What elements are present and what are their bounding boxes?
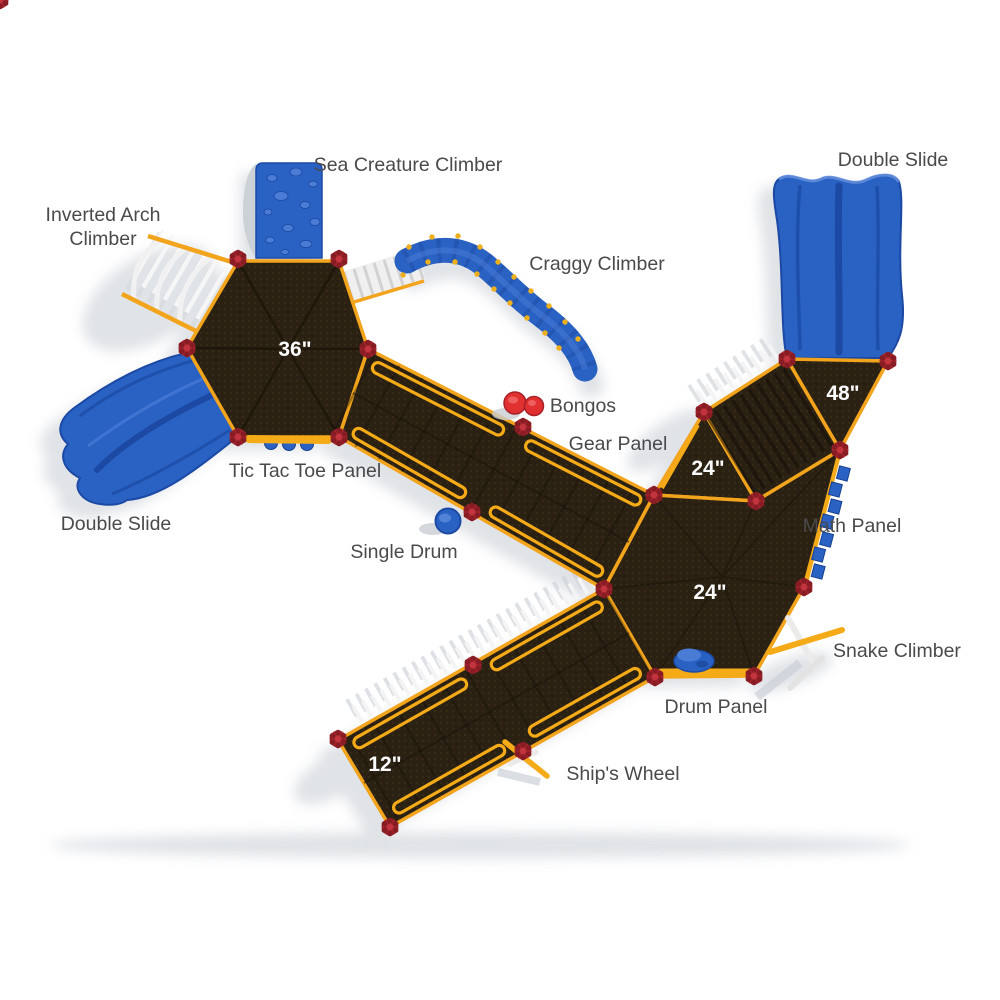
double-slide-top: [774, 175, 903, 358]
label-drum-panel: Drum Panel: [665, 696, 768, 718]
sea-creature-climber: [243, 163, 322, 258]
label-inverted-arch-line2: Climber: [69, 228, 137, 250]
height-label-24-upper: 24": [691, 457, 724, 480]
label-inverted-arch-line1: Inverted Arch: [46, 204, 161, 226]
label-tic-tac-toe-panel: Tic Tac Toe Panel: [229, 460, 381, 482]
height-label-36: 36": [278, 338, 311, 361]
label-single-drum: Single Drum: [350, 541, 457, 563]
label-bongos: Bongos: [550, 395, 616, 417]
label-sea-creature-climber: Sea Creature Climber: [314, 154, 503, 176]
height-label-48: 48": [826, 382, 859, 405]
playground-illustration: Sea Creature Climber Double Slide Invert…: [0, 0, 1000, 1000]
label-math-panel: Math Panel: [803, 515, 902, 537]
single-drum: [419, 509, 461, 536]
label-double-slide-left: Double Slide: [61, 513, 172, 535]
label-double-slide-top: Double Slide: [838, 149, 949, 171]
label-ships-wheel: Ship's Wheel: [566, 763, 679, 785]
label-craggy-climber: Craggy Climber: [529, 253, 665, 275]
playground-top-view-diagram: Sea Creature Climber Double Slide Invert…: [0, 0, 1000, 1000]
label-snake-climber: Snake Climber: [833, 640, 961, 662]
height-label-24-lower: 24": [693, 581, 726, 604]
height-label-12: 12": [368, 753, 401, 776]
bongos: [492, 392, 544, 420]
label-gear-panel: Gear Panel: [569, 433, 668, 455]
